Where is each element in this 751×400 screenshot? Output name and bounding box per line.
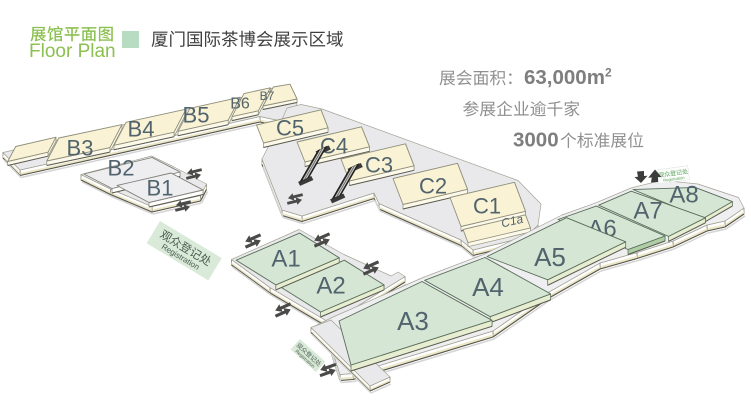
svg-text:A5: A5 [534, 242, 566, 272]
svg-text:A4: A4 [472, 272, 504, 302]
svg-text:C4: C4 [320, 134, 348, 159]
svg-text:A3: A3 [397, 306, 429, 336]
svg-text:A8: A8 [669, 182, 698, 209]
svg-text:63,000m2: 63,000m2 [524, 66, 612, 90]
svg-text:B3: B3 [67, 136, 94, 161]
svg-text:B1: B1 [147, 176, 174, 201]
svg-text:B6: B6 [230, 96, 250, 113]
svg-text:Floor Plan: Floor Plan [29, 41, 116, 62]
svg-text:B7: B7 [260, 89, 275, 103]
svg-text:A2: A2 [316, 273, 345, 300]
svg-text:3000: 3000 [513, 129, 559, 152]
svg-text:C1: C1 [473, 194, 501, 219]
svg-text:C5: C5 [276, 116, 304, 141]
svg-text:A7: A7 [633, 198, 662, 225]
svg-text:C3: C3 [365, 153, 393, 178]
svg-text:B2: B2 [108, 156, 135, 181]
svg-text:A1: A1 [271, 246, 300, 273]
svg-text:C2: C2 [419, 174, 447, 199]
svg-text:B4: B4 [128, 117, 155, 142]
svg-text:B5: B5 [183, 103, 210, 128]
